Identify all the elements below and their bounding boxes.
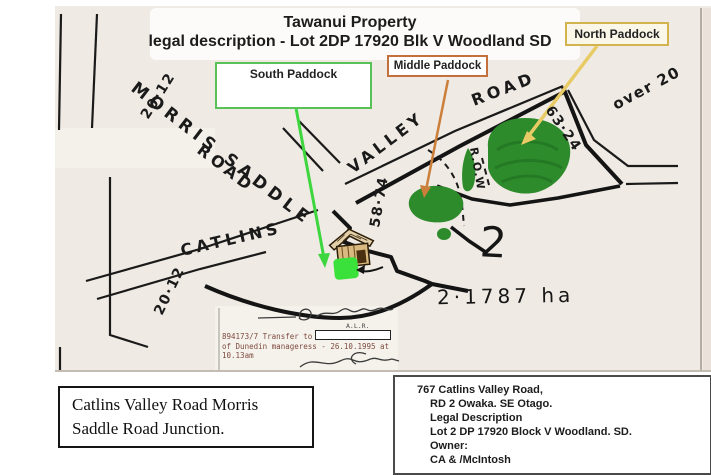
redaction-box xyxy=(315,330,391,340)
south-paddock-marker xyxy=(333,257,359,280)
transfer-record-line3: 10.13am xyxy=(222,351,391,361)
property-details-box: 767 Catlins Valley Road, RD 2 Owaka. SE … xyxy=(393,375,711,475)
junction-caption-line1: Catlins Valley Road Morris xyxy=(72,393,300,417)
lot-area: 2·1787 ha xyxy=(437,283,575,309)
property-owner-value: CA & /McIntosh xyxy=(430,453,702,467)
property-legal-value: Lot 2 DP 17920 Block V Woodland. SD. xyxy=(430,425,702,439)
lot-number: 2 xyxy=(479,217,508,267)
property-legal-heading: Legal Description xyxy=(430,411,702,425)
middle-paddock-area xyxy=(409,186,464,223)
small-paddock-patch xyxy=(437,228,451,240)
south-paddock-label-box: South Paddock xyxy=(215,62,372,109)
property-owner-heading: Owner: xyxy=(430,439,702,453)
property-address-line1: 767 Catlins Valley Road, xyxy=(417,383,702,397)
transfer-record-text1: 894173/7 Transfer to xyxy=(222,332,312,341)
north-paddock-label: North Paddock xyxy=(574,27,659,41)
scanned-map-page: { "title": { "line1": "Tawanui Property"… xyxy=(0,0,711,475)
transfer-record-line2: of Dunedin manageress - 26.10.1995 at xyxy=(222,342,391,352)
transfer-record-line1: 894173/7 Transfer to xyxy=(222,330,391,342)
property-address-line2: RD 2 Owaka. SE Otago. xyxy=(430,397,702,411)
map-title-line2: legal description - Lot 2DP 17920 Blk V … xyxy=(130,32,570,51)
map-title: Tawanui Property legal description - Lot… xyxy=(130,13,570,51)
north-paddock-label-box: North Paddock xyxy=(565,22,669,46)
alr-stamp: A.L.R. xyxy=(346,322,369,330)
junction-caption-line2: Saddle Road Junction. xyxy=(72,417,300,441)
map-title-line1: Tawanui Property xyxy=(130,13,570,32)
middle-paddock-label-box: Middle Paddock xyxy=(387,55,488,77)
scan-right-margin xyxy=(703,8,711,371)
south-paddock-label: South Paddock xyxy=(250,67,337,81)
transfer-record: 894173/7 Transfer to of Dunedin managere… xyxy=(222,330,391,361)
middle-paddock-label: Middle Paddock xyxy=(394,60,482,72)
junction-caption-box: Catlins Valley Road Morris Saddle Road J… xyxy=(58,386,314,448)
